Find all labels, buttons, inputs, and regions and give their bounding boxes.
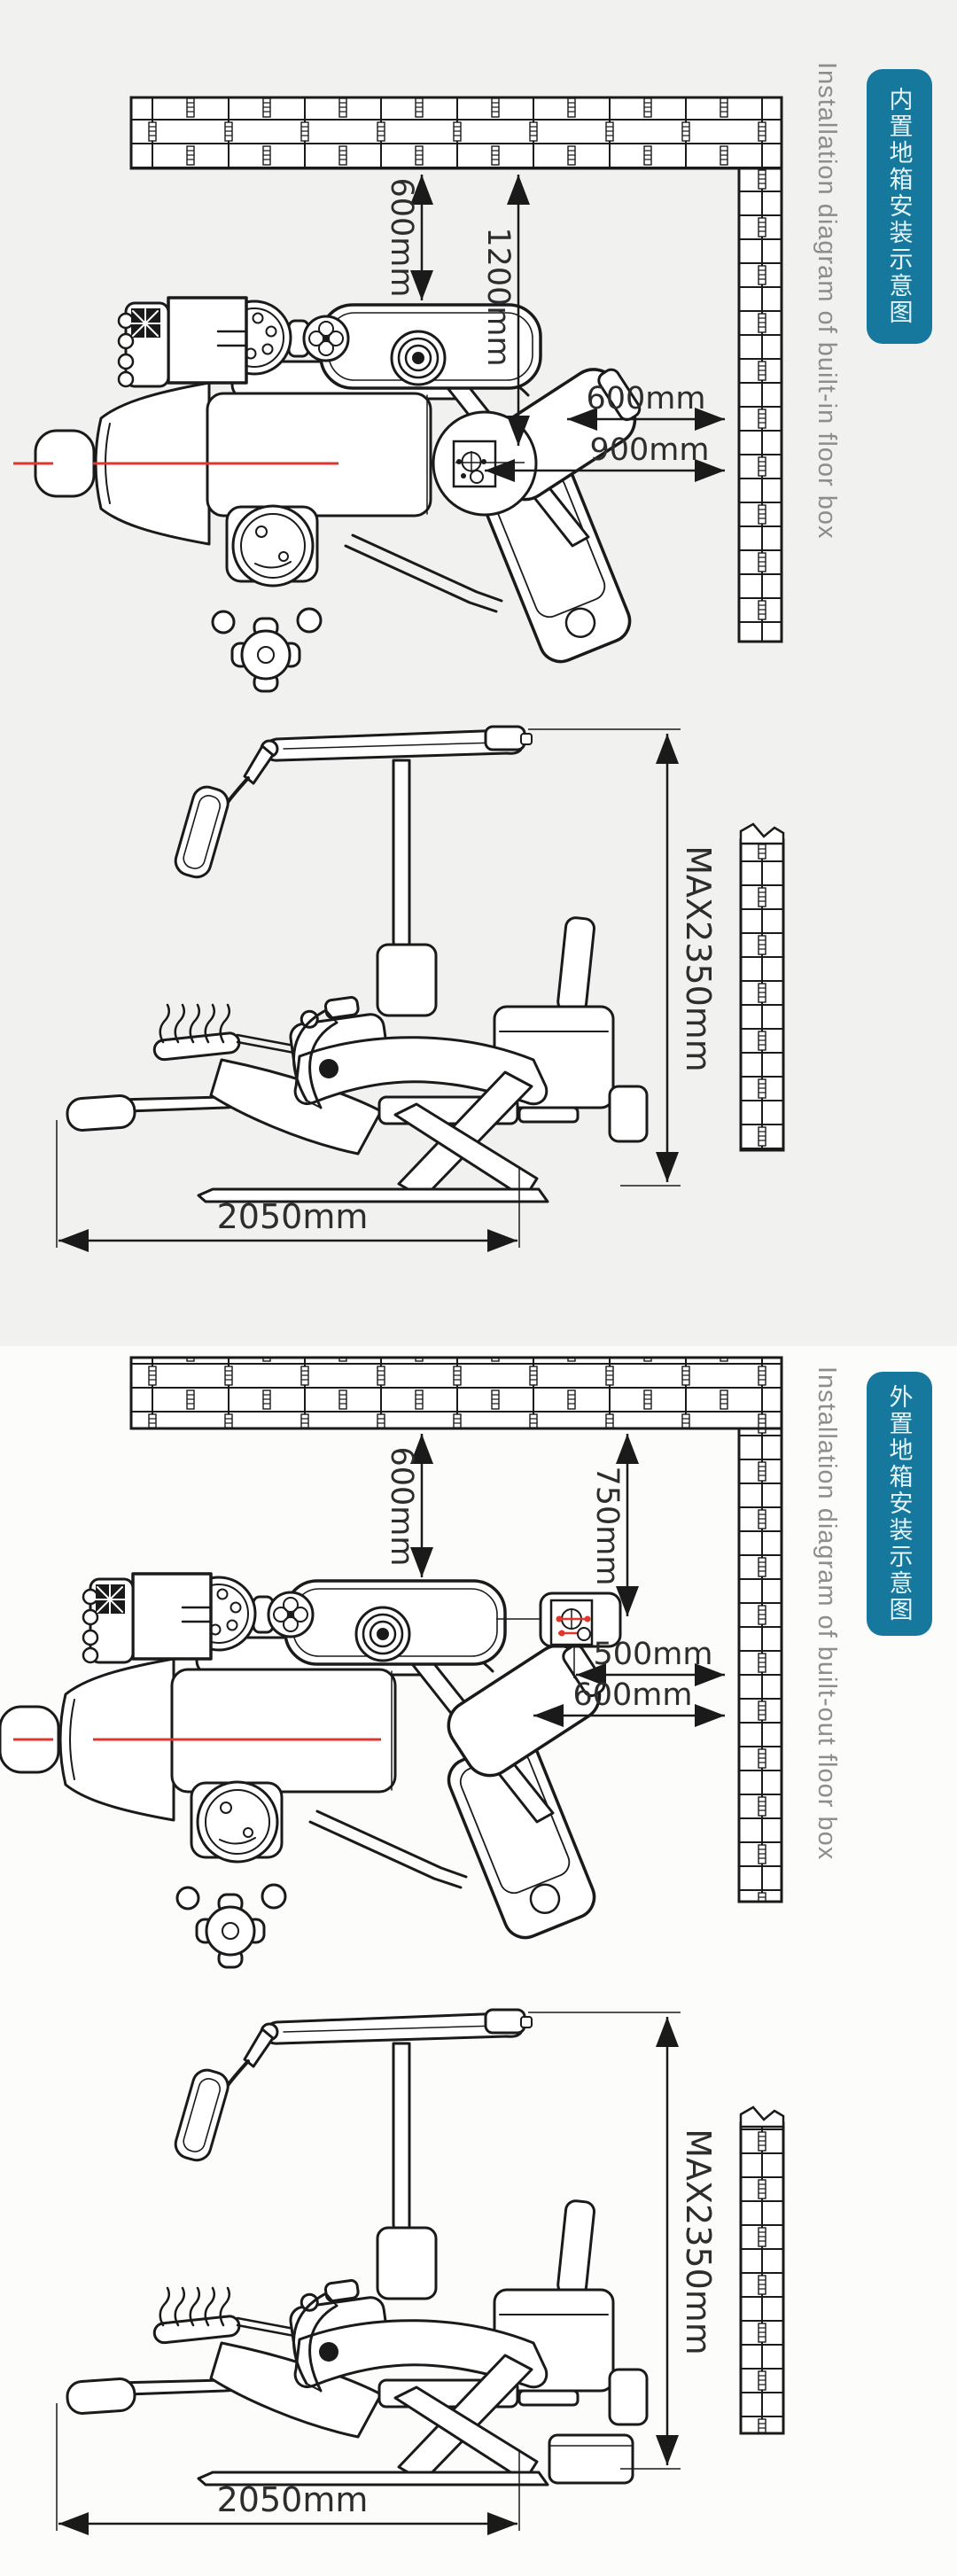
- dim-label: MAX2350mm: [679, 2129, 718, 2355]
- dim-label: 2050mm: [217, 2480, 369, 2519]
- dim-wall-to-unit: 600mm: [384, 1434, 422, 1577]
- page: 600mm 1200mm 600mm 900mm MAX2350mm 2050m…: [0, 0, 957, 2576]
- caption-built-in: Installation diagram of built-in floor b…: [812, 62, 841, 539]
- dim-label: 600mm: [384, 178, 419, 298]
- dim-label: 900mm: [590, 432, 710, 468]
- dental-chair-top-view: [35, 298, 650, 691]
- dim-wall-to-floorbox: 750mm: [589, 1434, 627, 1616]
- dental-chair-top-view: [0, 1574, 615, 1967]
- dim-label: 1200mm: [480, 227, 516, 366]
- dim-label: 600mm: [587, 381, 706, 416]
- section-built-in: 600mm 1200mm 600mm 900mm MAX2350mm 2050m…: [0, 0, 957, 1346]
- brick-wall-right: [739, 168, 782, 642]
- dim-floorbox-to-wall: 500mm: [576, 1637, 725, 1675]
- badge-built-out: 外置地箱安装示意图: [867, 1372, 932, 1636]
- section-built-out: 600mm 750mm 500mm 600mm MAX2350mm 2050mm…: [0, 1346, 957, 2576]
- dim-wall-to-unit: 600mm: [384, 175, 422, 300]
- dim-unit-to-wall: 600mm: [567, 381, 725, 419]
- dim-label: 2050mm: [217, 1197, 369, 1236]
- dim-label: 600mm: [573, 1677, 693, 1713]
- floor-box-magnifier: [433, 412, 536, 515]
- dental-chair-side-view: [66, 727, 647, 1202]
- brick-wall-column: [741, 824, 783, 1150]
- brick-wall-column: [741, 2107, 783, 2433]
- caption-built-out: Installation diagram of built-out floor …: [812, 1366, 841, 1860]
- brick-wall-right: [739, 1428, 782, 1902]
- dim-label: 500mm: [594, 1637, 713, 1672]
- dental-chair-side-view: [66, 2010, 647, 2485]
- dim-label: MAX2350mm: [679, 845, 718, 1072]
- external-floor-box-side: [549, 2435, 633, 2483]
- dim-label: 750mm: [589, 1467, 625, 1586]
- dim-label: 600mm: [384, 1447, 419, 1567]
- dim-wall-to-floorbox: 1200mm: [480, 175, 518, 446]
- brick-wall-top: [131, 1358, 782, 1428]
- brick-wall-top: [131, 97, 782, 168]
- badge-built-in: 内置地箱安装示意图: [867, 69, 932, 344]
